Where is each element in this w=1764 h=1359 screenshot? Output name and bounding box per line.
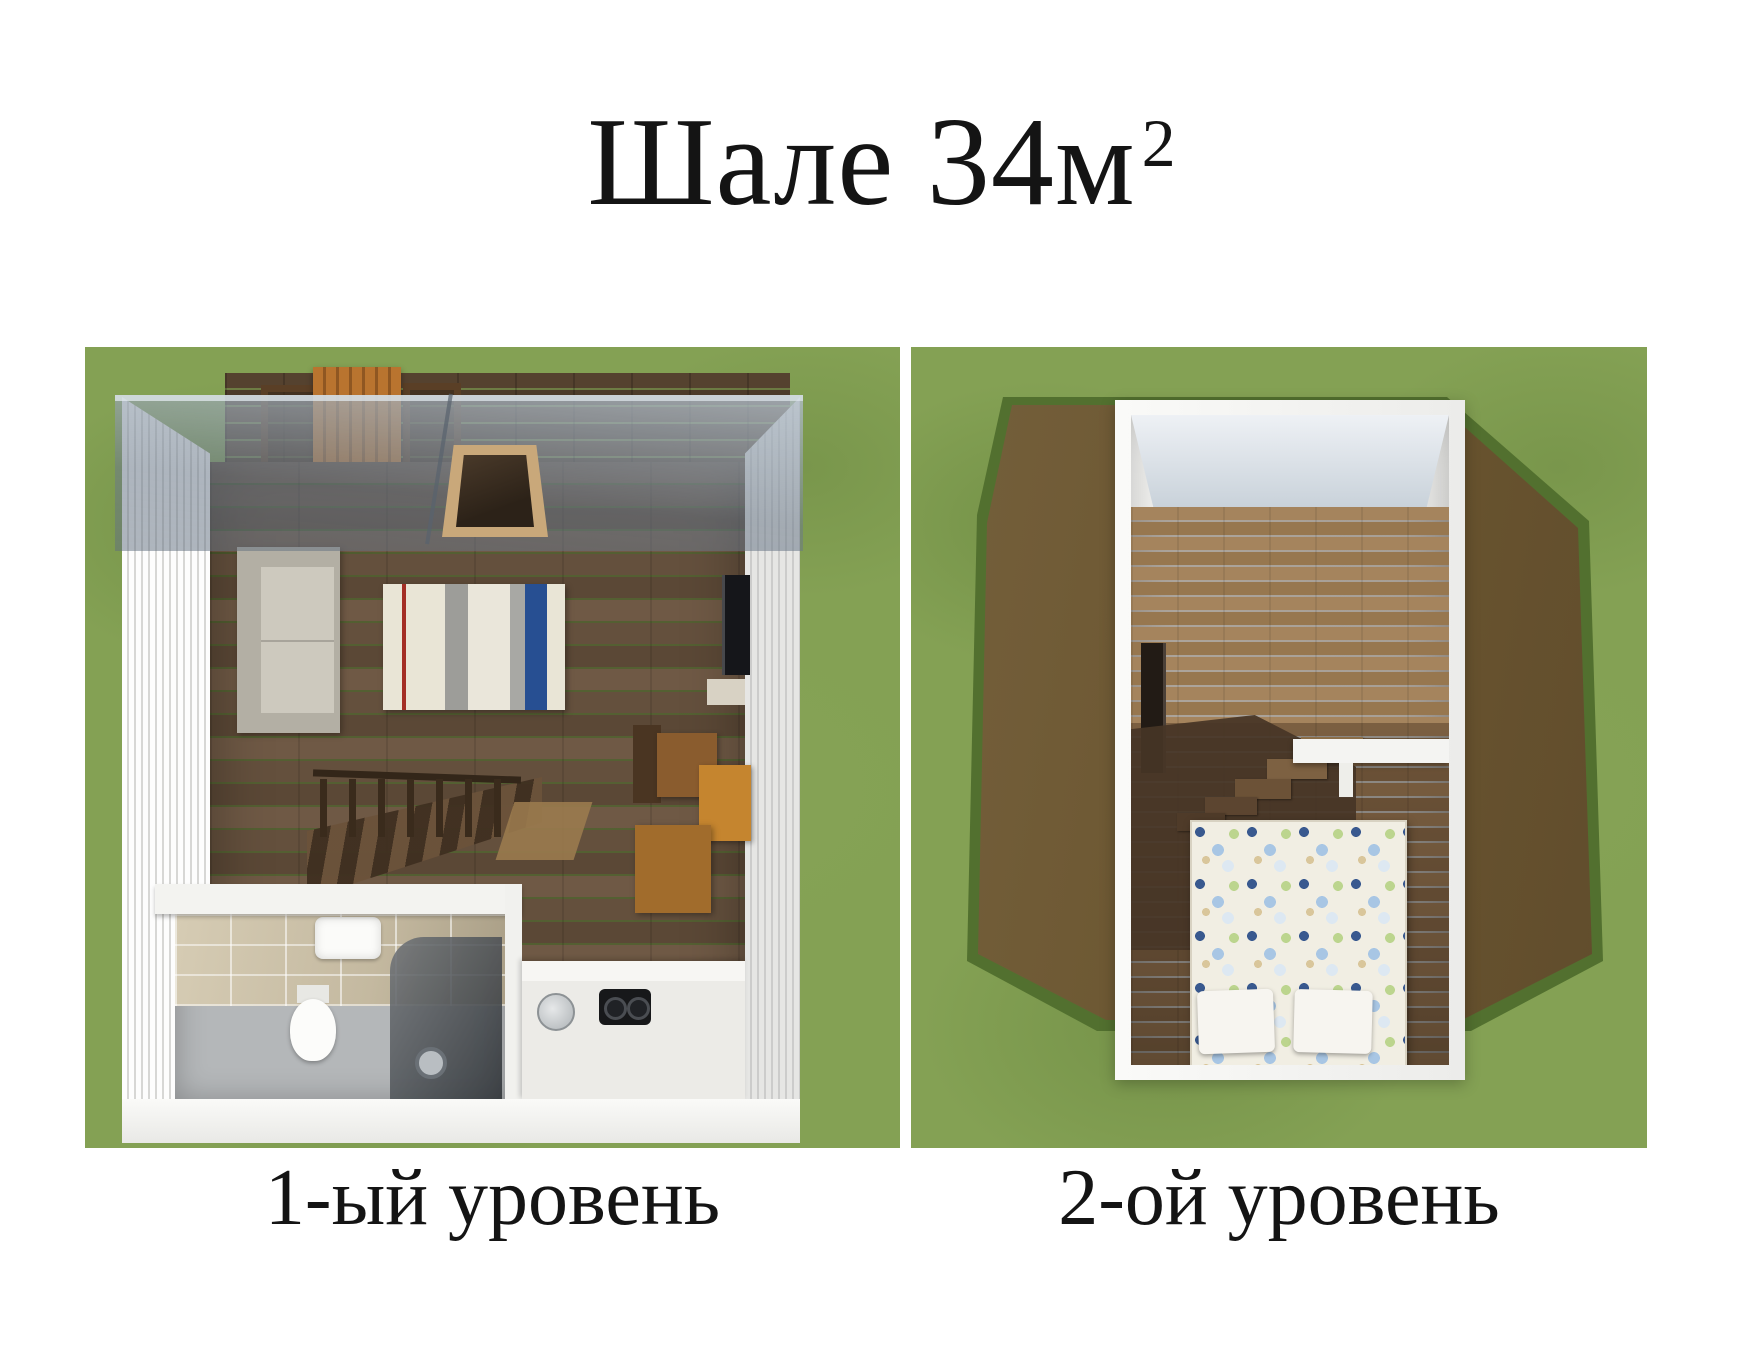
railing-post — [349, 779, 356, 837]
caption-level-1: 1-ый уровень — [85, 1150, 900, 1246]
house-wall-bottom — [122, 1099, 800, 1143]
page: Шале 34м2 — [0, 0, 1764, 1359]
railing-post — [407, 779, 414, 837]
railing-post — [378, 779, 385, 837]
railing-post — [436, 779, 443, 837]
toilet — [290, 999, 336, 1061]
balustrade-return — [1339, 763, 1353, 797]
stove — [599, 989, 651, 1025]
railing-post — [320, 779, 327, 837]
shower-cabin — [390, 937, 502, 1100]
burner-icon — [604, 997, 627, 1020]
sofa — [237, 547, 340, 733]
tv — [722, 575, 750, 675]
attic-room-interior — [1131, 415, 1449, 1065]
burner-icon — [627, 997, 650, 1020]
railing-post — [494, 779, 501, 837]
shower-head-icon — [415, 1047, 447, 1079]
pillow — [1197, 989, 1275, 1055]
floor-plan-level-1 — [85, 347, 900, 1148]
skylight-window — [442, 445, 548, 537]
bathroom-sink — [315, 917, 381, 959]
skylight-opening — [456, 455, 534, 527]
pillow — [1293, 989, 1373, 1054]
bathroom-wall — [155, 884, 522, 914]
kitchen-sink — [537, 993, 575, 1031]
railing-post — [465, 779, 472, 837]
media-shelf — [707, 679, 745, 705]
dining-table — [635, 825, 711, 913]
attic-room — [1115, 400, 1465, 1080]
page-title-text: Шале 34м — [587, 93, 1135, 232]
gable-ceiling — [1131, 415, 1449, 507]
bathroom-divider-wall — [505, 884, 522, 1100]
attic-floor-upper — [1131, 507, 1449, 723]
page-title-superscript: 2 — [1142, 105, 1177, 181]
caption-level-2: 2-ой уровень — [911, 1150, 1647, 1246]
sofa-cushions — [261, 567, 334, 713]
page-title: Шале 34м2 — [0, 100, 1764, 226]
balustrade — [1293, 739, 1449, 763]
striped-rug-bed — [383, 584, 565, 710]
stair-step — [1235, 779, 1291, 799]
floor-plan-level-2 — [911, 347, 1647, 1148]
